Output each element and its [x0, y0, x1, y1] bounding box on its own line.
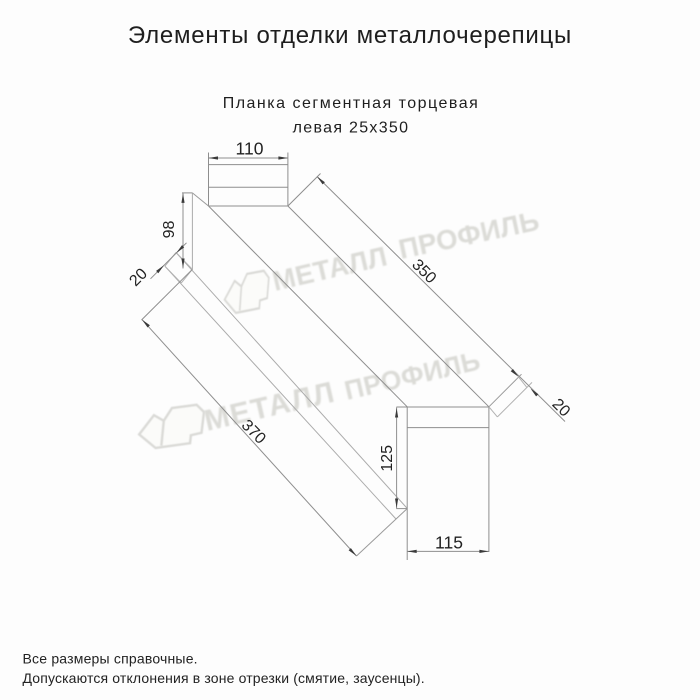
svg-text:Все размеры справочные.: Все размеры справочные.	[23, 651, 198, 667]
svg-text:125: 125	[379, 445, 396, 472]
svg-text:левая 25х350: левая 25х350	[293, 120, 410, 137]
svg-text:Допускаются отклонения в зоне: Допускаются отклонения в зоне отрезки (с…	[23, 670, 425, 686]
svg-text:Элементы отделки металлочерепи: Элементы отделки металлочерепицы	[128, 22, 572, 49]
svg-text:Планка сегментная торцевая: Планка сегментная торцевая	[223, 95, 480, 112]
svg-text:115: 115	[435, 533, 463, 553]
svg-text:110: 110	[236, 139, 264, 159]
svg-text:98: 98	[161, 221, 178, 239]
